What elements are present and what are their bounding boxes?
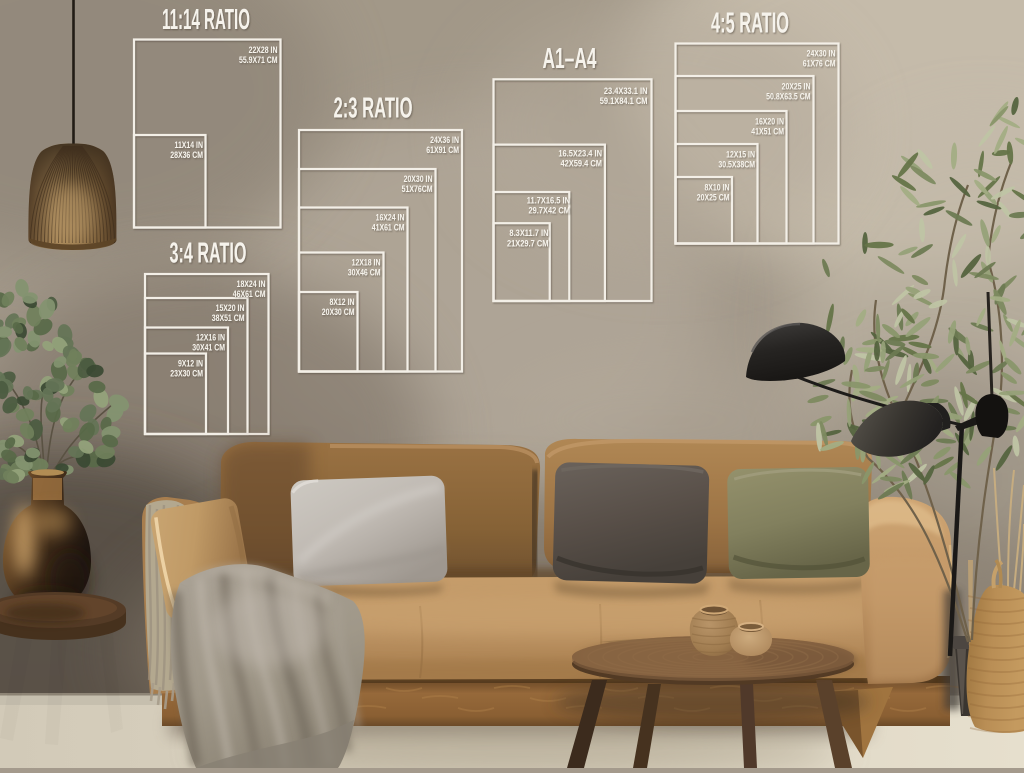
svg-text:21X29.7 CM: 21X29.7 CM <box>507 237 549 248</box>
svg-text:30X41 CM: 30X41 CM <box>192 343 225 353</box>
svg-text:12X15 IN: 12X15 IN <box>726 150 755 160</box>
svg-text:46X61 CM: 46X61 CM <box>233 289 266 299</box>
svg-text:23X30 CM: 23X30 CM <box>170 369 203 379</box>
svg-text:38X51 CM: 38X51 CM <box>212 313 245 323</box>
svg-text:41X51 CM: 41X51 CM <box>751 127 784 137</box>
svg-text:15X20 IN: 15X20 IN <box>216 303 245 313</box>
svg-text:8X12 IN: 8X12 IN <box>329 297 354 307</box>
svg-text:12X18 IN: 12X18 IN <box>352 258 381 268</box>
svg-text:12X16 IN: 12X16 IN <box>196 333 225 343</box>
svg-text:3:4 RATIO: 3:4 RATIO <box>170 238 247 270</box>
svg-text:A1–A4: A1–A4 <box>543 43 597 75</box>
svg-text:11:14 RATIO: 11:14 RATIO <box>162 4 250 36</box>
svg-text:50.8X63.5 CM: 50.8X63.5 CM <box>766 92 811 102</box>
svg-text:42X59.4 CM: 42X59.4 CM <box>560 158 602 169</box>
svg-text:20X25 IN: 20X25 IN <box>782 82 811 92</box>
svg-text:20X30 IN: 20X30 IN <box>404 174 433 184</box>
svg-text:9X12 IN: 9X12 IN <box>178 359 203 369</box>
svg-text:2:3 RATIO: 2:3 RATIO <box>334 93 413 125</box>
svg-text:8X10 IN: 8X10 IN <box>704 183 729 193</box>
svg-text:29.7X42 CM: 29.7X42 CM <box>528 205 570 216</box>
svg-text:20X30 CM: 20X30 CM <box>322 307 355 317</box>
svg-text:16X24 IN: 16X24 IN <box>376 213 405 223</box>
svg-text:24X36 IN: 24X36 IN <box>430 135 459 145</box>
svg-text:11X14 IN: 11X14 IN <box>174 140 203 150</box>
svg-text:41X61 CM: 41X61 CM <box>372 223 405 233</box>
svg-text:61X76 CM: 61X76 CM <box>803 59 836 69</box>
svg-text:16X20 IN: 16X20 IN <box>755 117 784 127</box>
svg-text:59.1X84.1 CM: 59.1X84.1 CM <box>600 95 648 106</box>
svg-text:4:5 RATIO: 4:5 RATIO <box>711 8 789 40</box>
svg-text:30.5X38CM: 30.5X38CM <box>718 160 755 170</box>
svg-text:24X30 IN: 24X30 IN <box>807 49 836 59</box>
svg-text:20X25 CM: 20X25 CM <box>697 193 730 203</box>
svg-text:18X24 IN: 18X24 IN <box>237 279 266 289</box>
svg-text:61X91 CM: 61X91 CM <box>426 145 459 155</box>
svg-text:30X46 CM: 30X46 CM <box>348 268 381 278</box>
svg-text:55.9X71 CM: 55.9X71 CM <box>239 55 278 65</box>
svg-text:51X76CM: 51X76CM <box>402 184 433 194</box>
svg-text:22X28 IN: 22X28 IN <box>249 45 278 55</box>
svg-text:28X36 CM: 28X36 CM <box>170 150 203 160</box>
